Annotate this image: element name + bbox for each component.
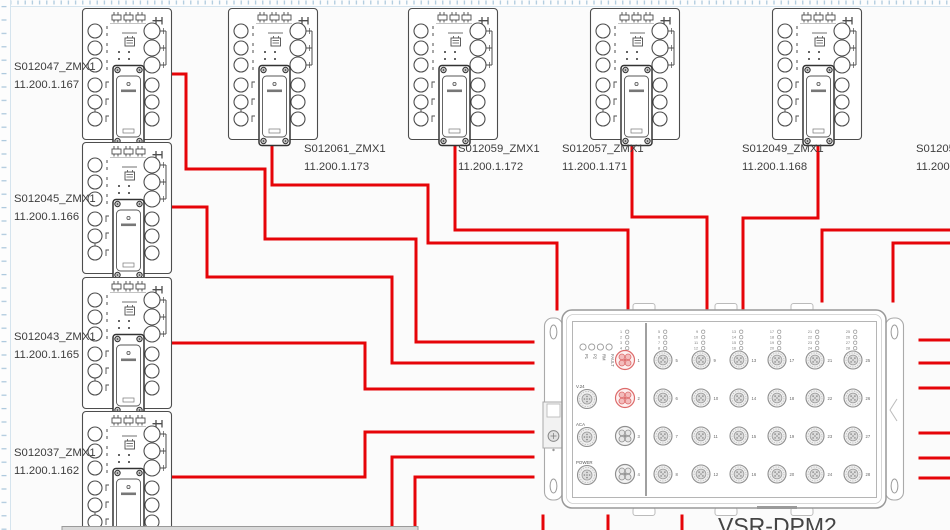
dpm-bottom-bar [757,506,797,509]
port-led-number: 9 [696,330,698,334]
port-led [854,347,857,350]
connector-pin [698,471,700,473]
port-led [626,336,629,339]
connector-pin [662,397,664,399]
port-led-number: 4 [620,347,622,351]
port-led [626,330,629,333]
device-ip-label: 11.200.1.166 [14,211,79,223]
connector-pin [778,471,780,473]
connector-pin [814,473,816,475]
connector-pin [586,401,588,403]
port-number: 17 [790,358,795,363]
connector-pin [814,435,816,437]
cutoff-device-edge [62,527,418,530]
port-led [664,341,667,344]
status-led [597,344,603,350]
connector-pin [584,474,586,476]
connector-pin [738,359,740,361]
port-led-number: 18 [770,336,774,340]
cable-s012043[interactable] [172,343,533,389]
connector-pin [776,359,778,361]
zmx-device[interactable] [83,9,172,146]
device-ip-label: 11.200.1.171 [562,161,627,173]
connector-pin [850,475,852,477]
port-lobe [625,436,631,442]
dpm-device[interactable]: P1P2RMFAULTV.24ACAPOWER12341234567856789… [543,304,904,516]
connector-pin [852,359,854,361]
connector-pin [589,436,591,438]
connector-pin [778,475,780,477]
port-led-number: 25 [846,330,850,334]
connector-pin [850,357,852,359]
port-lobe [619,392,625,398]
port-led-number: 6 [658,336,660,340]
status-led-label: P1 [584,354,589,360]
connector-pin [702,399,704,401]
connector-pin [740,395,742,397]
connector-pin [854,475,856,477]
port-center-pin [624,359,626,361]
connector-pin [584,436,586,438]
device-ip-label: 11.200.1.173 [304,161,369,173]
port-lobe [625,398,631,404]
port-number: 26 [866,396,871,401]
bracket-hole [891,479,898,493]
connector-pin [700,473,702,475]
port-number: 16 [752,472,757,477]
port-lobe [625,468,631,474]
port-led-number: 21 [808,330,812,334]
connector-pin [850,433,852,435]
connector-pin [852,473,854,475]
dpm-bracket-right [886,318,904,500]
port-led-number: 3 [620,341,622,345]
port-number: 24 [828,472,833,477]
port-led [740,347,743,350]
connector-pin [740,399,742,401]
connector-pin [816,475,818,477]
port-led [740,336,743,339]
port-lobe [625,360,631,366]
device-name-label: S012053 [916,143,950,155]
connector-pin [778,357,780,359]
connector-pin [736,437,738,439]
connector-pin [660,395,662,397]
bracket-hole [891,325,898,339]
port-led-number: 17 [770,330,774,334]
status-led-label: RM [601,354,606,361]
port-led-number: 28 [846,347,850,351]
device-name-label: S012057_ZMX1 [562,143,644,155]
connector-pin [852,397,854,399]
zmx-device[interactable] [773,9,862,146]
port-led [702,336,705,339]
connector-pin [584,398,586,400]
connector-pin [736,471,738,473]
port-lobe [619,430,625,436]
port-number: 19 [790,434,795,439]
port-led [664,330,667,333]
aux-connector-label: V.24 [576,384,585,389]
device-name-label: S012049_ZMX1 [742,143,824,155]
connector-pin [586,474,588,476]
device-ip-label: 11.200.1.167 [14,79,79,91]
connector-pin [736,433,738,435]
port-lobe [619,468,625,474]
connector-pin [586,398,588,400]
connector-pin [702,475,704,477]
port-led [626,341,629,344]
port-led [664,336,667,339]
connector-pin [700,397,702,399]
connector-pin [812,395,814,397]
bracket-hole [550,479,557,493]
port-led [740,341,743,344]
connector-pin [700,359,702,361]
connector-pin [664,437,666,439]
connector-pin [778,433,780,435]
connector-pin [736,357,738,359]
connector-pin [776,473,778,475]
connector-pin [660,399,662,401]
connector-pin [660,361,662,363]
port-lobe [619,474,625,480]
connector-pin [816,399,818,401]
port-lobe [625,474,631,480]
port-led [816,341,819,344]
ruler-top [0,0,950,6]
connector-pin [816,395,818,397]
connector-pin [664,357,666,359]
port-lobe [625,354,631,360]
connector-pin [814,359,816,361]
connector-pin [662,435,664,437]
port-lobe [625,430,631,436]
connector-pin [740,437,742,439]
connector-pin [778,399,780,401]
bracket-clamp-top [547,404,560,417]
connector-pin [850,395,852,397]
port-led [816,330,819,333]
connector-pin [774,361,776,363]
port-led-number: 14 [732,336,736,340]
port-lobe [619,354,625,360]
device-ip-label: 11.200.1.165 [14,349,79,361]
connector-pin [586,434,588,436]
connector-pin [774,471,776,473]
zmx-device[interactable] [591,9,680,146]
port-number: 21 [828,358,833,363]
connector-pin [816,361,818,363]
port-led [854,330,857,333]
port-led [702,341,705,344]
connector-pin [664,361,666,363]
connector-pin [586,439,588,441]
connector-pin [812,357,814,359]
connector-pin [660,471,662,473]
status-led-label: P2 [593,354,598,360]
connector-pin [664,433,666,435]
port-led [778,347,781,350]
connector-pin [589,398,591,400]
ruler-left [0,0,10,530]
port-led-number: 1 [620,330,622,334]
connector-pin [774,399,776,401]
connector-pin [776,435,778,437]
diagram-canvas: P1P2RMFAULTV.24ACAPOWER12341234567856789… [0,0,950,530]
connector-pin [812,433,814,435]
connector-pin [664,395,666,397]
aux-connector-label: POWER [576,460,593,465]
port-led [854,341,857,344]
port-led-number: 27 [846,341,850,345]
connector-pin [589,474,591,476]
port-center-pin [624,435,626,437]
connector-pin [774,475,776,477]
connector-pin [698,475,700,477]
bracket-dot [552,449,554,451]
port-number: 22 [828,396,833,401]
port-led-number: 10 [694,336,698,340]
port-number: 14 [752,396,757,401]
zmx-device[interactable] [229,9,318,146]
connector-pin [586,472,588,474]
port-led-number: 19 [770,341,774,345]
connector-pin [812,399,814,401]
port-led-number: 12 [694,347,698,351]
connector-pin [702,471,704,473]
connector-pin [740,475,742,477]
port-led [702,347,705,350]
cable-offscreen-right-2[interactable] [893,243,950,301]
connector-pin [660,475,662,477]
port-number: 12 [714,472,719,477]
port-led [816,347,819,350]
connector-pin [778,361,780,363]
connector-pin [660,433,662,435]
connector-pin [816,471,818,473]
connector-pin [774,357,776,359]
connector-pin [774,395,776,397]
connector-pin [664,471,666,473]
connector-pin [854,361,856,363]
device-name-label: S012047_ZMX1 [14,61,96,73]
port-number: 10 [714,396,719,401]
connector-pin [736,361,738,363]
device-ip-label: 11.200.1.162 [14,465,79,477]
port-led-number: 26 [846,336,850,340]
device-ip-label: 11.200.1.168 [742,161,807,173]
port-led-number: 22 [808,336,812,340]
connector-pin [854,433,856,435]
connector-pin [662,359,664,361]
port-led-number: 5 [658,330,660,334]
connector-pin [850,471,852,473]
connector-pin [812,471,814,473]
bracket-hole [550,325,557,339]
connector-pin [586,436,588,438]
port-number: 28 [866,472,871,477]
connector-pin [854,437,856,439]
device-name-label: S012045_ZMX1 [14,193,96,205]
port-led [778,341,781,344]
connector-pin [812,361,814,363]
connector-pin [586,477,588,479]
cable-s012037[interactable] [172,432,533,477]
cable-offscreen-bottom-1[interactable] [392,457,533,530]
connector-pin [740,471,742,473]
device-name-label: S012059_ZMX1 [458,143,540,155]
port-number: 11 [714,434,719,439]
device-name-label: S012043_ZMX1 [14,331,96,343]
connector-pin [816,357,818,359]
dpm-label: VSR-DPM2 [718,513,837,530]
connector-pin [736,475,738,477]
connector-pin [586,396,588,398]
dpm-body[interactable] [562,310,886,508]
port-number: 23 [828,434,833,439]
port-lobe [625,392,631,398]
connector-pin [850,437,852,439]
port-number: 15 [752,434,757,439]
port-led [816,336,819,339]
connector-pin [854,399,856,401]
port-lobe [619,398,625,404]
status-led [606,344,612,350]
connector-pin [698,399,700,401]
connector-pin [850,399,852,401]
device-ip-label: 11.200.1 [916,161,950,173]
port-led-number: 7 [658,341,660,345]
port-led [778,330,781,333]
port-number: 20 [790,472,795,477]
connector-pin [736,395,738,397]
connector-pin [816,437,818,439]
port-lobe [619,360,625,366]
connector-pin [702,357,704,359]
device-ip-label: 11.200.1.172 [458,161,523,173]
port-number: 27 [866,434,871,439]
device-name-label: S012061_ZMX1 [304,143,386,155]
status-led [580,344,586,350]
connector-pin [738,397,740,399]
port-led-number: 23 [808,341,812,345]
port-led-number: 8 [658,347,660,351]
connector-pin [814,397,816,399]
connector-pin [740,361,742,363]
port-led-number: 2 [620,336,622,340]
connector-pin [738,435,740,437]
port-led [778,336,781,339]
connector-pin [812,475,814,477]
port-number: 13 [752,358,757,363]
aux-connector-label: ACA [576,422,585,427]
connector-pin [698,357,700,359]
connector-pin [702,361,704,363]
port-led [664,347,667,350]
connector-pin [854,357,856,359]
connector-pin [660,357,662,359]
connector-pin [852,435,854,437]
connector-pin [774,433,776,435]
connector-pin [702,433,704,435]
device-name-label: S012037_ZMX1 [14,447,96,459]
diagram-svg: P1P2RMFAULTV.24ACAPOWER12341234567856789… [0,0,950,530]
connector-pin [854,395,856,397]
port-led [740,330,743,333]
connector-pin [740,433,742,435]
cable-offscreen-right-1[interactable] [822,230,950,301]
connector-pin [702,437,704,439]
cable-s012057[interactable] [632,140,707,309]
port-led [702,330,705,333]
connector-pin [738,473,740,475]
connector-pin [698,433,700,435]
connector-pin [740,357,742,359]
port-number: 25 [866,358,871,363]
zmx-device[interactable] [83,412,172,530]
connector-pin [778,437,780,439]
port-number: 18 [790,396,795,401]
port-led [626,347,629,350]
port-led [854,336,857,339]
connector-pin [662,473,664,475]
connector-pin [736,399,738,401]
connector-pin [700,435,702,437]
port-led-number: 15 [732,341,736,345]
port-led-number: 13 [732,330,736,334]
port-center-pin [624,473,626,475]
port-center-pin [624,397,626,399]
connector-pin [664,399,666,401]
status-led-label: FAULT [610,354,615,367]
connector-pin [702,395,704,397]
status-led [589,344,595,350]
connector-pin [774,437,776,439]
cable-offscreen-bottom-2[interactable] [415,477,533,530]
connector-pin [778,395,780,397]
port-led-number: 11 [694,341,698,345]
port-led-number: 16 [732,347,736,351]
connector-pin [776,397,778,399]
zmx-device[interactable] [83,143,172,280]
zmx-device[interactable] [83,278,172,415]
connector-pin [660,437,662,439]
connector-pin [698,437,700,439]
connector-pin [664,475,666,477]
zmx-device[interactable] [409,9,498,146]
connector-pin [698,361,700,363]
connector-pin [850,361,852,363]
port-led-number: 20 [770,347,774,351]
connector-pin [698,395,700,397]
connector-pin [854,471,856,473]
port-lobe [619,436,625,442]
connector-pin [816,433,818,435]
connector-pin [812,437,814,439]
port-led-number: 24 [808,347,812,351]
